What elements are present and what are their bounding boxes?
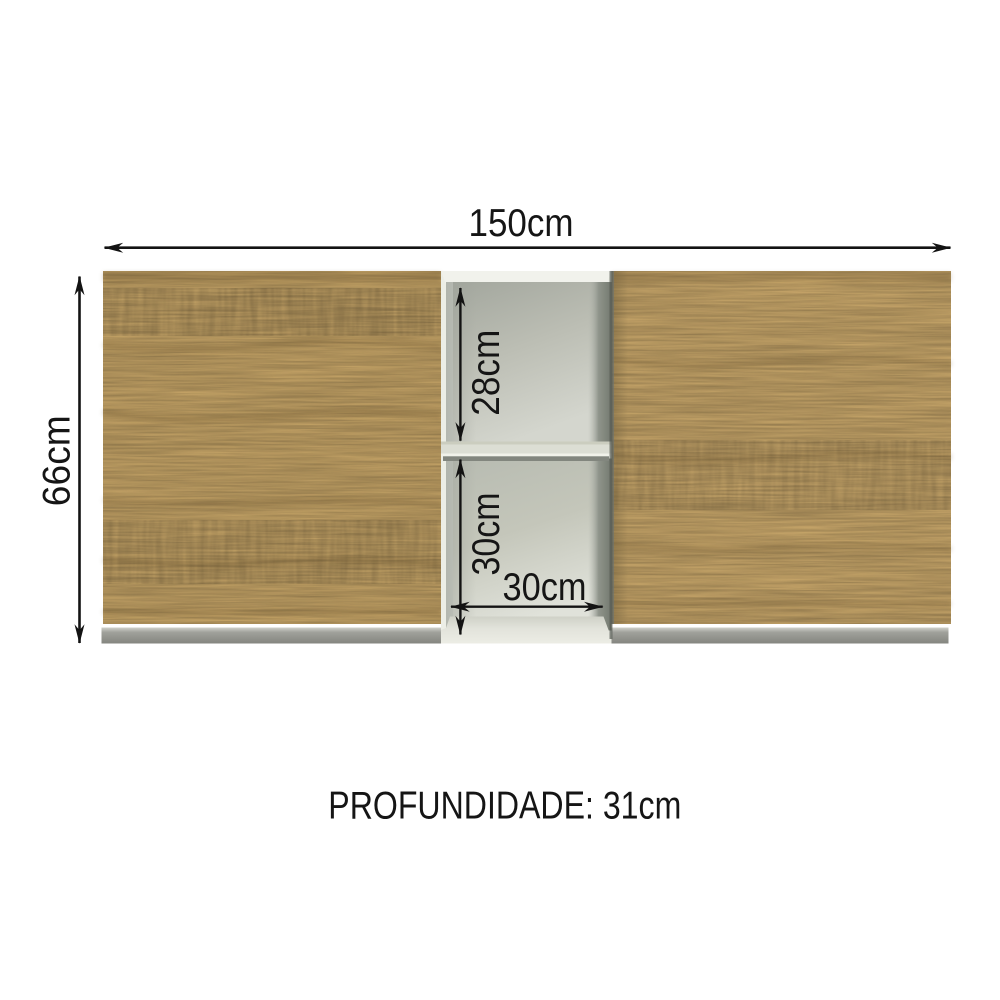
svg-text:66cm: 66cm [36,415,79,506]
svg-text:30cm: 30cm [465,493,508,576]
svg-text:28cm: 28cm [465,330,508,416]
svg-text:30cm: 30cm [503,566,587,609]
svg-text:PROFUNDIDADE: 31cm: PROFUNDIDADE: 31cm [328,785,681,828]
svg-text:150cm: 150cm [469,202,574,245]
